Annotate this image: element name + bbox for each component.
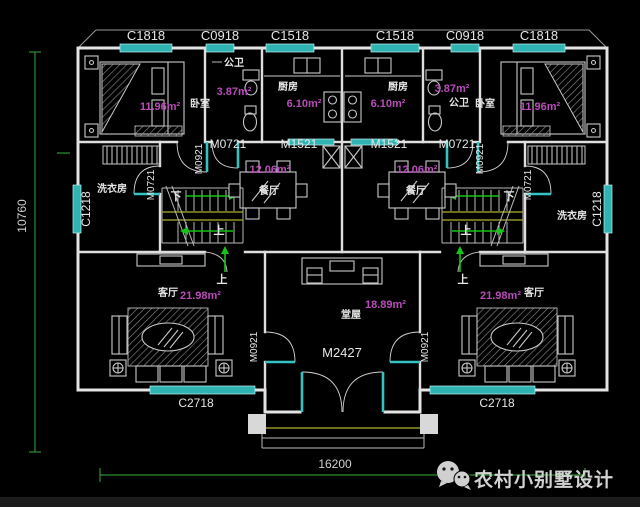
- porch-block-left: [248, 414, 266, 434]
- stair-down-label: 下: [171, 190, 182, 203]
- window-c1518-right: [371, 44, 419, 52]
- room-name: 公卫: [449, 97, 469, 109]
- door-label: M0921: [420, 331, 431, 362]
- room-name: 厨房: [388, 80, 408, 93]
- window-label: C2718: [178, 396, 214, 410]
- room-name: 厨房: [278, 80, 298, 93]
- window-label: C1218: [79, 191, 93, 227]
- room-area: 3.87m²: [435, 83, 470, 95]
- door-label: M0721: [210, 137, 247, 151]
- bottom-strip: [0, 497, 640, 507]
- room-name: 卧室: [475, 97, 495, 110]
- door-label: M0721: [439, 137, 476, 151]
- window-label: C0918: [446, 28, 484, 43]
- floor-plan-screenshot: 10760 16200: [0, 0, 640, 507]
- stair-up-label: 上: [217, 272, 228, 286]
- window-label: C1818: [520, 28, 558, 43]
- window-c2718-right: [430, 386, 535, 394]
- room-area: 6.10m²: [287, 98, 322, 110]
- window-c1818-left: [120, 44, 172, 52]
- window-label: C1818: [127, 28, 165, 43]
- room-name: 餐厅: [405, 184, 426, 197]
- window-c0918-right: [451, 44, 479, 52]
- window-c1218-right: [604, 185, 612, 233]
- watermark-text: 农村小别墅设计: [473, 468, 614, 491]
- room-name: 洗衣房: [557, 209, 587, 222]
- door-label: M0921: [249, 331, 260, 362]
- door-label: M1521: [281, 137, 318, 151]
- room-name: 卧室: [190, 97, 210, 110]
- door-label: M0721: [146, 169, 157, 200]
- room-area: 11.96m²: [520, 101, 561, 113]
- door-label: M0721: [523, 169, 534, 200]
- stair-up-label: 上: [458, 272, 469, 286]
- window-label: C1218: [590, 191, 604, 227]
- room-area: 12.06m²: [250, 164, 291, 176]
- dimension-width-label: 16200: [318, 457, 352, 471]
- room-name: 客厅: [523, 286, 544, 299]
- room-name: 餐厅: [258, 184, 279, 197]
- room-name: 公卫: [224, 57, 244, 69]
- room-area: 21.98m²: [180, 290, 221, 302]
- room-name: 客厅: [157, 286, 178, 299]
- room-area: 11.96m²: [140, 101, 181, 113]
- stair-up-label: 上: [461, 223, 472, 237]
- room-name: 洗衣房: [97, 182, 127, 195]
- floor-plan-drawing: 10760 16200: [0, 0, 640, 507]
- door-label: M0921: [475, 143, 486, 174]
- dimension-height-label: 10760: [15, 199, 29, 233]
- stair-down-label: 下: [504, 190, 515, 203]
- window-label: C1518: [376, 28, 414, 43]
- room-area: 6.10m²: [371, 98, 406, 110]
- porch-block-right: [420, 414, 438, 434]
- window-c2718-left: [150, 386, 255, 394]
- door-label: M0921: [194, 143, 205, 174]
- window-label: C2718: [479, 396, 515, 410]
- room-name: 堂屋: [341, 308, 361, 321]
- room-area: 12.06m²: [397, 164, 438, 176]
- stair-up-label: 上: [214, 223, 225, 237]
- window-c1518-left: [266, 44, 314, 52]
- door-label: M1521: [371, 137, 408, 151]
- room-area: 21.98m²: [480, 290, 521, 302]
- room-area: 3.87m²: [217, 86, 252, 98]
- window-label: C1518: [271, 28, 309, 43]
- room-area: 18.89m²: [365, 299, 406, 311]
- window-label: C0918: [201, 28, 239, 43]
- window-c1818-right: [513, 44, 565, 52]
- window-c0918-left: [206, 44, 234, 52]
- door-label-main: M2427: [322, 345, 362, 360]
